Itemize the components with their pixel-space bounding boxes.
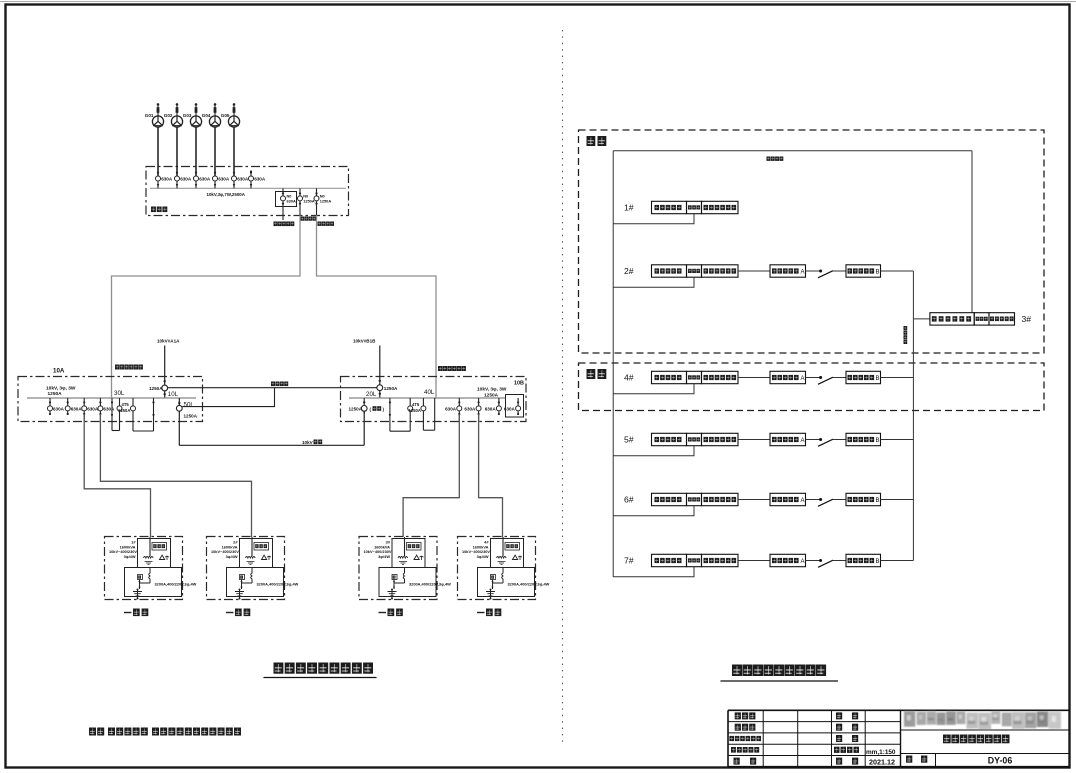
svg-text:630A: 630A — [237, 176, 249, 181]
svg-text:630A: 630A — [485, 407, 497, 412]
svg-text:1250A: 1250A — [303, 198, 315, 203]
svg-text:1250A: 1250A — [384, 386, 398, 391]
svg-text:630A: 630A — [87, 407, 99, 412]
svg-text:3φ/4W: 3φ/4W — [477, 554, 489, 559]
svg-text:3φ/4W: 3φ/4W — [124, 554, 136, 559]
svg-text:B: B — [876, 376, 880, 382]
svg-text:630A: 630A — [161, 176, 173, 181]
svg-text:630A: 630A — [218, 176, 230, 181]
svg-text:4T5: 4T5 — [412, 402, 420, 407]
svg-text:630A: 630A — [464, 407, 476, 412]
svg-text:1250A: 1250A — [320, 198, 332, 203]
svg-text:3200A,400/220V,3φ,4W: 3200A,400/220V,3φ,4W — [257, 581, 299, 586]
svg-text:3200A,400/220V,3φ,4W: 3200A,400/220V,3φ,4W — [409, 581, 451, 586]
svg-text:5#: 5# — [624, 435, 634, 445]
svg-text:3200A,400/220V,3φ,4W: 3200A,400/220V,3φ,4W — [155, 581, 197, 586]
svg-text:630A: 630A — [445, 407, 457, 412]
svg-text:630A: 630A — [180, 176, 192, 181]
svg-text:40L: 40L — [424, 389, 435, 396]
svg-text:A: A — [801, 438, 805, 444]
svg-text:3φ/4W: 3φ/4W — [378, 554, 390, 559]
svg-text:10A: 10A — [53, 368, 65, 375]
svg-text:G04: G04 — [202, 113, 211, 118]
svg-text:G01: G01 — [145, 113, 154, 118]
svg-text:3200A,400/220V,3φ,4W: 3200A,400/220V,3φ,4W — [508, 581, 550, 586]
svg-text:1250A: 1250A — [149, 386, 163, 391]
svg-text:G02: G02 — [164, 113, 173, 118]
svg-text:10B: 10B — [514, 381, 524, 387]
svg-text:6#: 6# — [624, 495, 634, 505]
svg-text:20L: 20L — [366, 391, 377, 398]
svg-text:mm,1:150: mm,1:150 — [866, 749, 896, 756]
svg-text:2021.12: 2021.12 — [869, 757, 895, 766]
svg-text:1#: 1# — [624, 203, 634, 213]
svg-text:1250A: 1250A — [349, 407, 363, 412]
svg-text:G05: G05 — [221, 113, 230, 118]
svg-text:A: A — [801, 498, 805, 504]
svg-text:630A: 630A — [103, 407, 115, 412]
svg-text:B: B — [876, 498, 880, 504]
svg-text:630A: 630A — [53, 407, 65, 412]
svg-text:A: A — [801, 376, 805, 382]
svg-text:2#: 2# — [624, 266, 634, 276]
svg-text:1250A: 1250A — [48, 391, 63, 397]
svg-text:50L: 50L — [184, 402, 195, 409]
svg-text:1250A: 1250A — [409, 408, 421, 413]
svg-text:1250A: 1250A — [118, 408, 130, 413]
svg-text:3#: 3# — [1022, 314, 1032, 324]
svg-text:10L: 10L — [168, 391, 179, 398]
svg-text:DY-06: DY-06 — [988, 756, 1013, 766]
svg-text:7#: 7# — [624, 556, 634, 566]
svg-text:10kV: 10kV — [302, 440, 314, 445]
svg-text:10kV#A1A: 10kV#A1A — [157, 339, 180, 344]
svg-text:30L: 30L — [114, 390, 125, 397]
svg-text:B: B — [876, 270, 880, 276]
svg-text:630A: 630A — [71, 407, 83, 412]
svg-text:4#: 4# — [624, 373, 634, 383]
svg-text:G03: G03 — [183, 113, 192, 118]
svg-text:10kV#B1B: 10kV#B1B — [353, 339, 376, 344]
svg-text:10kV, 3φ, 3W: 10kV, 3φ, 3W — [477, 387, 507, 393]
svg-text:4T5: 4T5 — [122, 402, 130, 407]
svg-text:630A: 630A — [287, 198, 296, 203]
svg-text:630A: 630A — [199, 176, 211, 181]
svg-text:A: A — [801, 559, 805, 565]
svg-text:B: B — [876, 438, 880, 444]
svg-text:10kV, 3φ, 3W: 10kV, 3φ, 3W — [46, 386, 76, 392]
svg-text:630A: 630A — [254, 176, 266, 181]
svg-text:3φ/4W: 3φ/4W — [226, 554, 238, 559]
svg-text:B: B — [876, 559, 880, 565]
svg-text:10kV,3φ,7W,2500A: 10kV,3φ,7W,2500A — [207, 192, 246, 197]
svg-text:A: A — [801, 270, 805, 276]
svg-text:1250A: 1250A — [184, 414, 198, 419]
